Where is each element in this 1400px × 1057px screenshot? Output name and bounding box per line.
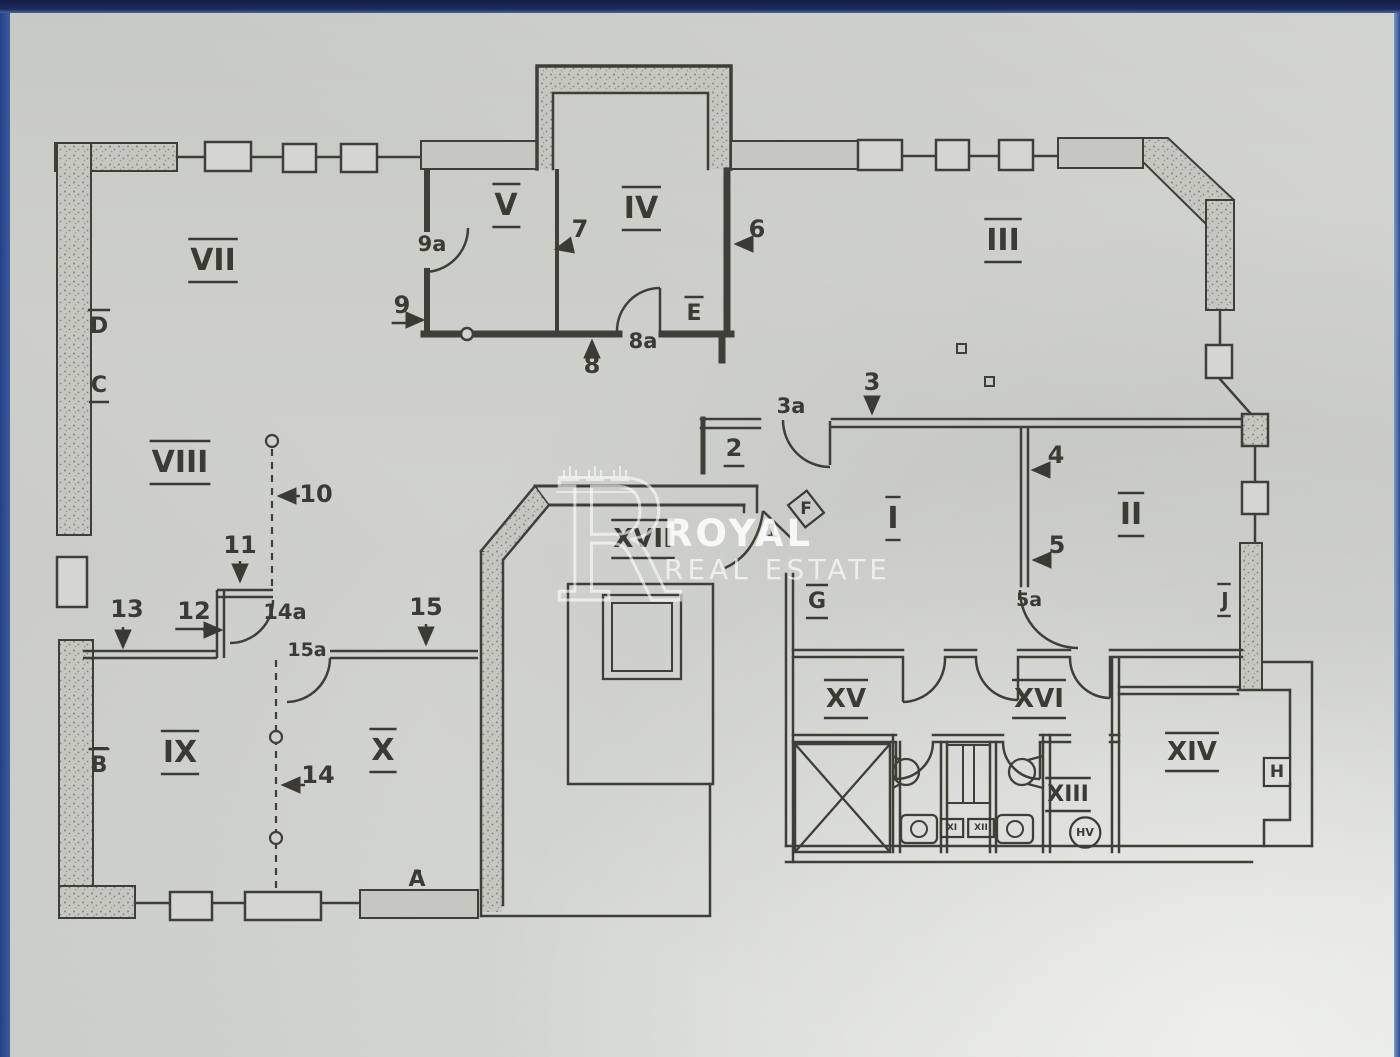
label-3a: 3a xyxy=(777,394,806,418)
label-15a: 15a xyxy=(287,639,326,661)
watermark-brand-line2: REAL ESTATE xyxy=(664,553,891,586)
label-A: A xyxy=(408,867,425,892)
label-5a: 5a xyxy=(1016,589,1042,611)
photo-frame-left xyxy=(0,13,10,1057)
screenshot-root: VIIVIIIIXXVIVIIIIIIXVIIXVXVIXIIIXIVDCBAE… xyxy=(0,0,1400,1057)
label-VII: VII xyxy=(190,243,236,278)
label-XVI: XVI xyxy=(1014,684,1064,714)
shaft-cross xyxy=(795,744,890,852)
label-G: G xyxy=(808,589,826,614)
label-3: 3 xyxy=(864,368,881,396)
label-XI: XI xyxy=(947,823,957,833)
sink-right xyxy=(1009,759,1035,785)
label-4: 4 xyxy=(1048,441,1065,469)
label-12: 12 xyxy=(177,597,210,625)
label-13: 13 xyxy=(110,595,143,623)
plan-partitions xyxy=(83,435,478,892)
label-8a: 8a xyxy=(629,329,658,353)
label-9: 9 xyxy=(394,291,411,319)
label-E: E xyxy=(686,301,701,326)
label-II: II xyxy=(1120,497,1142,532)
label-11: 11 xyxy=(223,531,256,559)
label-7: 7 xyxy=(572,215,589,243)
label-III: III xyxy=(986,223,1020,258)
label-X: X xyxy=(371,733,394,768)
label-8: 8 xyxy=(584,351,601,379)
photo-frame-right xyxy=(1394,13,1400,1057)
label-C: C xyxy=(91,373,107,398)
label-VIII: VIII xyxy=(152,445,209,480)
watermark: R ROYAL REAL ESTATE xyxy=(550,444,891,640)
label-10: 10 xyxy=(299,480,332,508)
label-2: 2 xyxy=(726,434,743,462)
label-H: H xyxy=(1270,762,1284,782)
label-5: 5 xyxy=(1049,531,1066,559)
label-14: 14 xyxy=(301,761,334,789)
label-J: J xyxy=(1219,588,1228,612)
toilet-right xyxy=(997,815,1033,843)
label-B: B xyxy=(91,753,108,778)
label-I: I xyxy=(887,501,898,536)
label-XIV: XIV xyxy=(1167,737,1217,767)
watermark-monogram: R xyxy=(550,444,681,640)
label-XV: XV xyxy=(826,684,866,714)
label-HV: HV xyxy=(1076,826,1094,839)
label-V: V xyxy=(494,188,518,223)
label-IV: IV xyxy=(624,191,659,226)
label-D: D xyxy=(90,314,108,339)
duct xyxy=(947,745,990,803)
label-15: 15 xyxy=(409,593,442,621)
label-XII: XII xyxy=(974,823,988,833)
label-IX: IX xyxy=(163,735,197,770)
label-6: 6 xyxy=(749,215,766,243)
floor-plan-svg: VIIVIIIIXXVIVIIIIIIXVIIXVXVIXIIIXIVDCBAE… xyxy=(0,0,1400,1057)
label-XIII: XIII xyxy=(1047,782,1089,807)
label-14a: 14a xyxy=(263,600,306,624)
label-9a: 9a xyxy=(418,232,447,256)
photo-frame-top xyxy=(0,0,1400,13)
watermark-brand-line1: ROYAL xyxy=(664,512,813,555)
toilet-left xyxy=(901,815,937,843)
